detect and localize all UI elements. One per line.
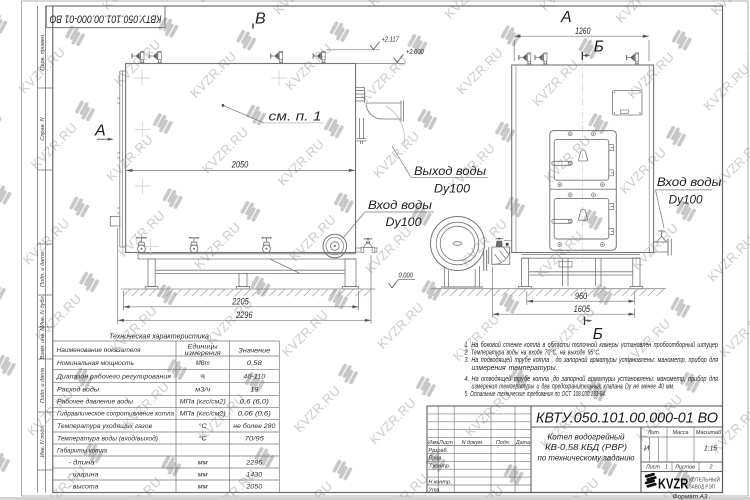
svg-text:Масштаб: Масштаб xyxy=(696,430,722,436)
svg-text:°С: °С xyxy=(199,422,207,430)
svg-text:Техническая характеристика: Техническая характеристика xyxy=(109,331,209,340)
svg-text:3. На подводящей трубе котла ,: 3. На подводящей трубе котла , до запорн… xyxy=(465,356,719,364)
svg-text:Температура воды (вход/выход): Температура воды (вход/выход) xyxy=(57,434,158,442)
svg-text:Разраб.: Разраб. xyxy=(429,448,449,454)
svg-text:МВт: МВт xyxy=(196,360,211,367)
svg-text:Значение: Значение xyxy=(238,347,270,354)
svg-text:Масса: Масса xyxy=(673,430,689,436)
svg-text:Габариты котла: Габариты котла xyxy=(57,446,107,454)
svg-text:Листов: Листов xyxy=(674,465,695,471)
svg-text:Номинальная мощность: Номинальная мощность xyxy=(57,360,134,367)
svg-text:А: А xyxy=(560,9,572,26)
svg-text:Температура уходящих газов: Температура уходящих газов xyxy=(57,422,153,430)
svg-text:Пров.: Пров. xyxy=(429,456,443,462)
svg-text:Выход воды: Выход воды xyxy=(414,164,486,178)
svg-text:1260: 1260 xyxy=(575,26,591,36)
svg-text:КВ-0,58 КБД (РВР): КВ-0,58 КБД (РВР) xyxy=(545,443,627,452)
svg-text:0,6 (6,0): 0,6 (6,0) xyxy=(240,399,269,406)
svg-text:Взам. инв. N: Взам. инв. N xyxy=(40,326,46,360)
svg-text:Лист: Лист xyxy=(438,440,453,446)
svg-text:1430: 1430 xyxy=(246,471,262,478)
svg-text:1. На боковой стенке котла в о: 1. На боковой стенке котла в области топ… xyxy=(465,341,719,349)
svg-text:Подп. и дата: Подп. и дата xyxy=(40,368,46,403)
svg-text:1:15: 1:15 xyxy=(704,444,718,453)
svg-text:2296: 2296 xyxy=(235,309,253,320)
svg-text:Лит.: Лит. xyxy=(647,430,661,436)
svg-text:4. На отводящей трубе котла ,д: 4. На отводящей трубе котла ,до запорной… xyxy=(465,375,719,383)
svg-text:мм: мм xyxy=(198,484,209,491)
svg-text:2050: 2050 xyxy=(245,484,263,491)
svg-text:°С: °С xyxy=(199,434,207,442)
svg-text:2: 2 xyxy=(709,465,713,471)
svg-text:KVZR: KVZR xyxy=(658,475,689,492)
svg-text:Б: Б xyxy=(593,326,603,343)
svg-text:1605: 1605 xyxy=(574,303,591,314)
svg-text:И: И xyxy=(644,444,650,453)
svg-text:измерения температуры.: измерения температуры. xyxy=(472,365,558,372)
svg-text:Инв. N дубл.: Инв. N дубл. xyxy=(40,295,46,327)
svg-text:мм: мм xyxy=(198,459,209,466)
svg-text:КВТУ.050.101.00.000-01 ВО: КВТУ.050.101.00.000-01 ВО xyxy=(536,410,718,426)
svg-text:КОТЕЛЬНЫЙ: КОТЕЛЬНЫЙ xyxy=(689,475,720,483)
svg-text:по техническому заданию: по техническому заданию xyxy=(538,453,635,462)
svg-text:не более 280: не более 280 xyxy=(233,422,275,430)
svg-text:2. Температура воды на входе 7: 2. Температура воды на входе 70°С, на вы… xyxy=(464,348,601,356)
svg-text:N докум.: N докум. xyxy=(462,440,484,446)
svg-text:+2.117: +2.117 xyxy=(382,36,400,44)
svg-text:1: 1 xyxy=(665,465,668,471)
svg-text:19: 19 xyxy=(250,386,259,393)
svg-text:0,06 (0,6): 0,06 (0,6) xyxy=(238,411,271,418)
svg-text:Dy100: Dy100 xyxy=(386,215,422,229)
svg-text:КВТУ.050.101.00.000-01 ВО: КВТУ.050.101.00.000-01 ВО xyxy=(49,12,161,24)
svg-text:Т.контр.: Т.контр. xyxy=(429,464,451,470)
svg-text:%: % xyxy=(200,373,205,380)
svg-text:Dy100: Dy100 xyxy=(434,182,470,196)
svg-text:А: А xyxy=(94,123,106,140)
svg-text:Н.контр.: Н.контр. xyxy=(429,479,452,485)
svg-text:- ширина: - ширина xyxy=(69,471,99,478)
svg-text:измерения температуры и два пр: измерения температуры и два предохраните… xyxy=(472,383,675,391)
svg-text:см. п. 1: см. п. 1 xyxy=(269,108,322,123)
svg-text:- высота: - высота xyxy=(69,484,99,491)
svg-text:МПа (кгс/см2): МПа (кгс/см2) xyxy=(180,411,226,418)
svg-text:Вход воды: Вход воды xyxy=(368,198,432,212)
svg-text:Подп.: Подп. xyxy=(496,440,510,446)
svg-text:Перв. примен.: Перв. примен. xyxy=(40,33,46,70)
svg-text:Справ. N: Справ. N xyxy=(40,116,46,140)
svg-text:+2.000: +2.000 xyxy=(406,49,424,57)
svg-text:Рабочее давление воды: Рабочее давление воды xyxy=(57,398,133,406)
svg-text:Диапазон рабочего регулировани: Диапазон рабочего регулирования xyxy=(56,372,172,380)
svg-text:5. Остальные технические требо: 5. Остальные технические требования по О… xyxy=(465,390,607,398)
svg-text:ЗАВОД РЭП: ЗАВОД РЭП xyxy=(689,484,715,490)
svg-text:Котел водогрейный: Котел водогрейный xyxy=(548,432,626,441)
svg-text:Вход воды: Вход воды xyxy=(657,175,722,189)
svg-text:2050: 2050 xyxy=(231,158,249,169)
svg-text:измерения: измерения xyxy=(185,350,222,357)
svg-text:40-110: 40-110 xyxy=(243,373,265,380)
svg-text:Дата: Дата xyxy=(515,440,530,446)
svg-text:- длина: - длина xyxy=(69,458,96,466)
svg-text:Б: Б xyxy=(594,39,604,56)
svg-text:Инв. N подл.: Инв. N подл. xyxy=(40,425,46,458)
svg-text:мм: мм xyxy=(198,471,209,478)
svg-text:Наименование показателя: Наименование показателя xyxy=(57,347,142,354)
svg-text:2205: 2205 xyxy=(231,296,249,307)
svg-text:Формат А3: Формат А3 xyxy=(673,493,708,500)
svg-text:0,58: 0,58 xyxy=(247,360,263,367)
svg-text:70/95: 70/95 xyxy=(245,435,265,442)
svg-text:Расход воды: Расход воды xyxy=(57,385,99,393)
svg-text:МПа (кгс/см2): МПа (кгс/см2) xyxy=(180,399,226,406)
svg-text:Dy100: Dy100 xyxy=(669,192,703,206)
svg-text:Лист: Лист xyxy=(645,465,660,471)
svg-text:м3/ч: м3/ч xyxy=(195,386,211,393)
svg-text:0.000: 0.000 xyxy=(399,272,414,280)
svg-text:2296: 2296 xyxy=(245,459,263,466)
svg-text:Утв.: Утв. xyxy=(428,487,441,493)
svg-text:В: В xyxy=(255,11,266,28)
svg-text:960: 960 xyxy=(575,290,588,301)
svg-text:Гидравлическое сопротивление к: Гидравлическое сопротивление котла xyxy=(57,410,174,418)
svg-text:Подп. и дата: Подп. и дата xyxy=(40,252,46,287)
svg-text:Изм.: Изм. xyxy=(428,440,440,446)
